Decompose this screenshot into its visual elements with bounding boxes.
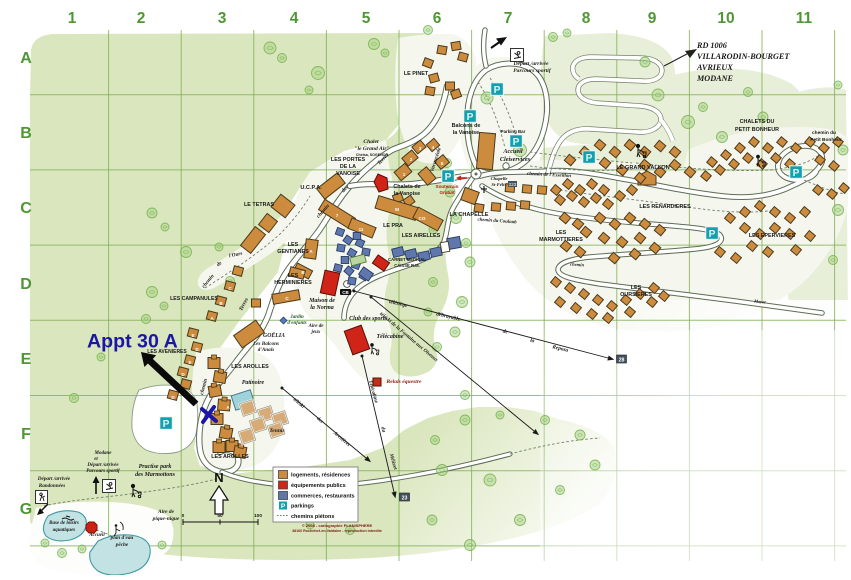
svg-text:P: P <box>513 137 520 148</box>
svg-text:Modane: Modane <box>94 451 113 456</box>
svg-text:Parking Bar: Parking Bar <box>501 129 526 134</box>
svg-text:jeux: jeux <box>311 330 321 335</box>
svg-text:4: 4 <box>432 145 435 150</box>
svg-text:P: P <box>793 168 800 179</box>
svg-text:P: P <box>281 503 286 510</box>
svg-text:Jardin: Jardin <box>289 315 304 320</box>
svg-text:Accueil: Accueil <box>88 533 105 538</box>
svg-text:100: 100 <box>254 513 262 519</box>
svg-text:Relais équestre: Relais équestre <box>386 379 422 385</box>
svg-text:Télécabine: Télécabine <box>377 334 404 340</box>
svg-text:28: 28 <box>619 358 625 364</box>
svg-text:LES AVENIERES: LES AVENIERES <box>147 349 187 355</box>
svg-text:Practise park: Practise park <box>139 464 172 470</box>
svg-text:5: 5 <box>362 10 371 27</box>
svg-text:2: 2 <box>410 157 413 162</box>
svg-text:10: 10 <box>717 10 734 27</box>
svg-text:Petit Bonheur: Petit Bonheur <box>810 137 842 143</box>
svg-text:aquatiques: aquatiques <box>53 528 76 533</box>
svg-text:HERMINIERES: HERMINIERES <box>274 280 312 286</box>
svg-text:GOËLIA: GOËLIA <box>263 332 285 339</box>
svg-text:CARNET MÉDICAL: CARNET MÉDICAL <box>388 257 426 262</box>
svg-text:P: P <box>494 85 501 96</box>
svg-text:7: 7 <box>504 10 513 27</box>
svg-text:P: P <box>586 153 593 164</box>
svg-text:LES EPERVIERES: LES EPERVIERES <box>749 233 796 239</box>
svg-text:11: 11 <box>359 227 364 232</box>
svg-text:3: 3 <box>419 146 422 151</box>
svg-text:P: P <box>163 419 170 430</box>
svg-text:Base de loisirs: Base de loisirs <box>48 521 79 526</box>
svg-text:P: P <box>709 229 716 240</box>
svg-text:chemin: chemin <box>570 262 585 268</box>
svg-text:DE LA: DE LA <box>340 164 356 170</box>
svg-text:des Marmottons: des Marmottons <box>135 472 176 478</box>
svg-text:CB: CB <box>342 290 349 295</box>
svg-text:PETIT BONHEUR: PETIT BONHEUR <box>735 127 779 133</box>
svg-text:MARMOTTIERES: MARMOTTIERES <box>539 237 583 243</box>
svg-text:pique-nique: pique-nique <box>152 516 180 522</box>
svg-text:logements, résidences: logements, résidences <box>291 473 350 479</box>
svg-text:plan d'eau: plan d'eau <box>110 535 134 541</box>
svg-text:VILLARODIN-BOURGET: VILLARODIN-BOURGET <box>697 52 790 61</box>
svg-text:LES CAMPANULES: LES CAMPANULES <box>170 296 218 302</box>
svg-text:1: 1 <box>403 172 406 177</box>
svg-text:F: F <box>21 426 31 443</box>
svg-text:MODANE: MODANE <box>696 74 733 83</box>
svg-text:"le Grand Air": "le Grand Air" <box>354 146 389 152</box>
svg-text:commerces, restaurants: commerces, restaurants <box>291 494 355 500</box>
svg-text:Départ /arrivée: Départ /arrivée <box>513 61 549 67</box>
svg-text:E: E <box>21 351 32 368</box>
svg-text:P: P <box>445 172 452 183</box>
svg-text:2: 2 <box>137 10 146 27</box>
svg-text:E: E <box>188 360 191 365</box>
svg-text:38160 Rochefort-en-Valdaine -: 38160 Rochefort-en-Valdaine - reproducti… <box>292 529 382 533</box>
svg-text:LES AROLLES: LES AROLLES <box>211 454 249 460</box>
svg-text:223: 223 <box>509 182 517 187</box>
svg-text:Chapelle: Chapelle <box>491 176 508 181</box>
svg-text:A: A <box>20 50 32 67</box>
svg-text:LE PRA: LE PRA <box>383 223 403 229</box>
svg-text:8: 8 <box>582 10 591 27</box>
svg-text:D: D <box>20 276 32 293</box>
svg-text:St-Félix: St-Félix <box>491 182 507 187</box>
svg-text:6: 6 <box>433 10 442 27</box>
svg-text:GENTIANES: GENTIANES <box>277 249 309 255</box>
svg-text:la Norma: la Norma <box>310 305 334 311</box>
svg-text:23: 23 <box>402 496 408 502</box>
svg-text:Tennis: Tennis <box>269 428 284 434</box>
svg-text:RD 1006: RD 1006 <box>696 41 728 50</box>
svg-text:LE PINET: LE PINET <box>404 71 429 77</box>
svg-text:11: 11 <box>796 10 813 27</box>
svg-text:LE TETRAS: LE TETRAS <box>244 202 274 208</box>
svg-text:et: et <box>94 457 98 462</box>
svg-text:chemins piétons: chemins piétons <box>291 514 334 520</box>
svg-text:N: N <box>214 470 223 485</box>
svg-text:Départ /arrivée: Départ /arrivée <box>37 476 71 482</box>
svg-text:0: 0 <box>182 513 185 519</box>
svg-text:4: 4 <box>290 10 299 27</box>
svg-text:G: G <box>20 501 32 518</box>
svg-text:la Vanoise: la Vanoise <box>394 191 420 197</box>
svg-text:d'enfants: d'enfants <box>287 321 306 326</box>
svg-text:AVRIEUX: AVRIEUX <box>696 63 733 72</box>
svg-text:pêche: pêche <box>115 542 129 548</box>
svg-text:50: 50 <box>217 513 223 519</box>
svg-text:Randonnées: Randonnées <box>39 483 66 489</box>
svg-text:LE GRAND VALLON: LE GRAND VALLON <box>616 165 669 171</box>
svg-text:Patinoire: Patinoire <box>242 380 265 386</box>
svg-text:la Vanoise: la Vanoise <box>453 130 479 136</box>
svg-text:CHALETS DU: CHALETS DU <box>740 119 775 125</box>
svg-text:LES: LES <box>288 242 299 248</box>
svg-text:parkings: parkings <box>291 504 314 510</box>
svg-text:Maison de: Maison de <box>308 298 335 304</box>
svg-text:7: 7 <box>336 213 339 218</box>
svg-text:P: P <box>467 112 474 123</box>
svg-text:LES AROLLES: LES AROLLES <box>231 364 269 370</box>
svg-text:Aire de: Aire de <box>157 509 175 515</box>
svg-text:LES: LES <box>556 230 567 236</box>
svg-text:5: 5 <box>441 161 444 166</box>
svg-text:équipements publics: équipements publics <box>291 483 346 489</box>
svg-text:LES AIRELLES: LES AIRELLES <box>402 233 441 239</box>
svg-text:Cleiservices: Cleiservices <box>500 156 531 163</box>
svg-text:U.C.P.A.: U.C.P.A. <box>300 185 322 191</box>
svg-text:C: C <box>20 200 32 217</box>
svg-text:Club des sports: Club des sports <box>349 316 387 322</box>
svg-text:Gratuit: Gratuit <box>439 190 455 195</box>
svg-text:CO: CO <box>419 216 426 221</box>
svg-text:LES: LES <box>288 273 299 279</box>
svg-text:3: 3 <box>218 10 227 27</box>
svg-text:LES: LES <box>631 285 642 291</box>
svg-text:Souterrain: Souterrain <box>436 184 459 189</box>
svg-text:Chalet: Chalet <box>363 139 379 145</box>
svg-text:© 2008 - cartographie PLANISPH: © 2008 - cartographie PLANISPHERE <box>302 523 373 528</box>
svg-text:Aire de: Aire de <box>308 324 325 329</box>
svg-text:d'Anaïs: d'Anaïs <box>258 347 274 353</box>
svg-text:Parcours sportif: Parcours sportif <box>86 469 121 474</box>
svg-text:Chalets de: Chalets de <box>393 184 420 190</box>
svg-text:VANOISE: VANOISE <box>336 171 360 177</box>
svg-text:1: 1 <box>68 10 77 27</box>
svg-text:Balcons de: Balcons de <box>452 123 481 129</box>
svg-text:Parcours sportif: Parcours sportif <box>513 68 552 74</box>
svg-text:OURSIERES: OURSIERES <box>620 292 652 298</box>
svg-text:E: E <box>191 333 194 338</box>
svg-text:CAISSE R.M.: CAISSE R.M. <box>394 263 420 268</box>
svg-text:chemin du: chemin du <box>812 130 836 136</box>
svg-text:B: B <box>20 125 32 142</box>
svg-text:M: M <box>395 207 399 212</box>
svg-text:Accueil: Accueil <box>502 148 523 155</box>
svg-text:9: 9 <box>648 10 657 27</box>
svg-text:LES PORTES: LES PORTES <box>331 157 366 163</box>
svg-text:LES RENARDIERES: LES RENARDIERES <box>639 204 691 210</box>
svg-text:Départ /arrivée: Départ /arrivée <box>86 463 119 468</box>
